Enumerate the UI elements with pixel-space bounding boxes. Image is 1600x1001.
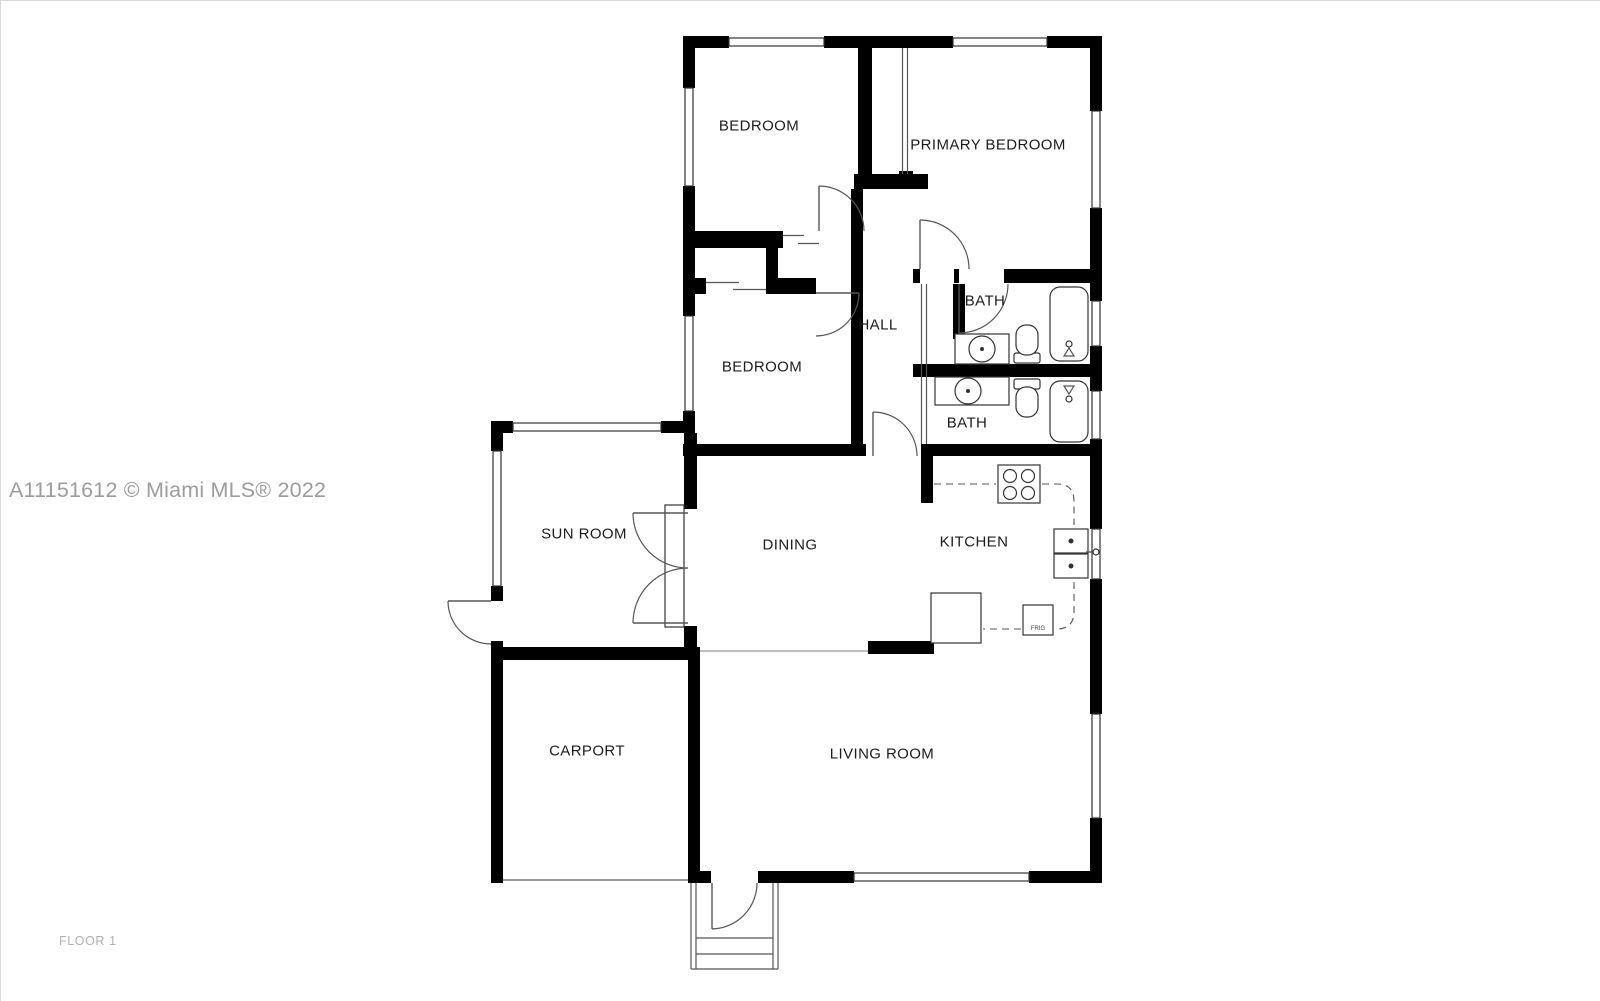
window [854, 871, 1029, 883]
toilet [1014, 379, 1040, 417]
refrigerator-label: FRIG [1031, 626, 1045, 632]
thin-partitions [903, 48, 927, 444]
kitchen-fixtures [931, 465, 1099, 643]
open-boundaries [503, 651, 868, 880]
primary-bedroom-door [920, 220, 969, 269]
sink-vanity [935, 377, 1009, 405]
window [491, 451, 503, 586]
room-label-bath-lower: BATH [947, 415, 988, 432]
window [1090, 714, 1102, 818]
room-label-bedroom-middle: BEDROOM [722, 359, 802, 376]
bathtub [1050, 381, 1088, 442]
window [1090, 111, 1102, 208]
entry-porch-steps [691, 883, 778, 969]
kitchen-counter [931, 593, 981, 643]
sun-room-french-doors [633, 505, 688, 627]
wall-openings [711, 871, 758, 883]
room-label-dining: DINING [763, 537, 818, 554]
room-label-bedroom-top: BEDROOM [719, 118, 799, 135]
sun-room-exterior-door [448, 601, 491, 644]
room-label-carport: CARPORT [549, 743, 625, 760]
window [683, 88, 695, 186]
room-label-sun-room: SUN ROOM [541, 526, 627, 543]
bathtub [1050, 287, 1088, 361]
floor-plan-page: BEDROOM PRIMARY BEDROOM HALL BATH BEDROO… [0, 0, 1600, 1001]
floor-number-label: FLOOR 1 [59, 934, 117, 948]
toilet [1014, 325, 1040, 363]
room-label-primary-bedroom: PRIMARY BEDROOM [910, 137, 1065, 154]
window [953, 36, 1047, 48]
closet-sliding-door [783, 236, 819, 244]
mls-watermark: A11151612 © Miami MLS® 2022 [9, 478, 326, 503]
room-label-kitchen: KITCHEN [940, 534, 1009, 551]
bath-lower-door [873, 412, 917, 456]
window [683, 316, 695, 411]
room-label-bath-upper: BATH [965, 293, 1006, 310]
window [1090, 391, 1102, 439]
window [513, 421, 661, 433]
doors [448, 186, 1008, 929]
stove [998, 465, 1040, 503]
window [729, 36, 824, 48]
closet-sliding-door [706, 283, 766, 290]
window [1090, 301, 1102, 346]
front-entry-door [712, 883, 757, 929]
sink-vanity [955, 334, 1009, 364]
room-label-hall: HALL [858, 317, 897, 334]
room-label-living-room: LIVING ROOM [830, 746, 934, 763]
